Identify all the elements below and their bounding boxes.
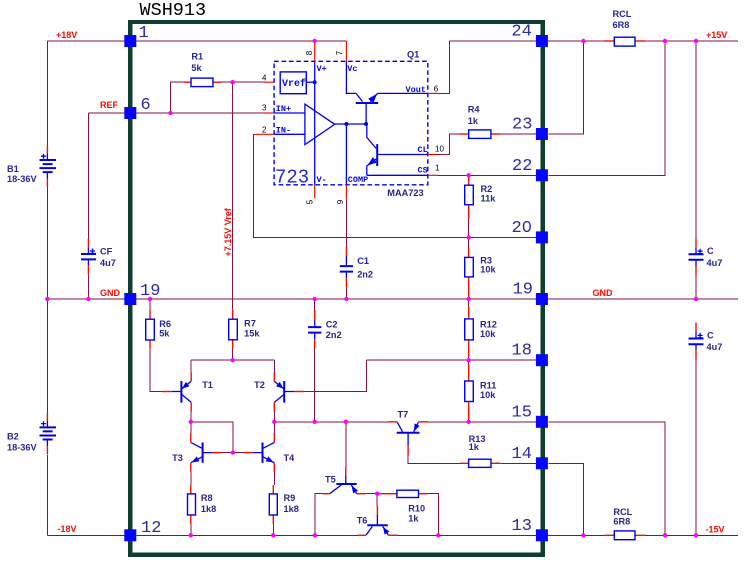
svg-text:COMP: COMP — [348, 175, 368, 185]
svg-text:REF: REF — [100, 100, 119, 110]
svg-text:5k: 5k — [191, 63, 202, 73]
svg-text:4u7: 4u7 — [707, 258, 723, 268]
svg-text:18-36V: 18-36V — [7, 443, 37, 453]
svg-text:24: 24 — [511, 23, 531, 42]
svg-text:R11: R11 — [480, 381, 496, 391]
svg-text:R6: R6 — [159, 319, 171, 329]
svg-text:T1: T1 — [202, 380, 213, 390]
svg-text:10k: 10k — [480, 390, 496, 400]
svg-text:10k: 10k — [480, 329, 496, 339]
svg-text:1k: 1k — [469, 442, 480, 452]
svg-text:9: 9 — [336, 199, 345, 204]
svg-text:10: 10 — [435, 145, 444, 154]
svg-text:1k: 1k — [408, 513, 419, 523]
svg-text:R2: R2 — [481, 184, 493, 194]
svg-text:B1: B1 — [7, 164, 19, 174]
svg-text:15: 15 — [512, 403, 532, 422]
svg-text:V-: V- — [317, 175, 327, 185]
svg-text:1: 1 — [139, 24, 149, 43]
svg-text:Vc: Vc — [347, 64, 357, 74]
svg-text:5k: 5k — [159, 329, 170, 339]
svg-text:+15V: +15V — [706, 30, 727, 40]
svg-text:14: 14 — [512, 445, 532, 464]
svg-text:Vref: Vref — [282, 78, 306, 90]
svg-text:IN-: IN- — [276, 125, 291, 135]
svg-text:C2: C2 — [326, 320, 338, 330]
svg-text:R8: R8 — [201, 493, 213, 503]
svg-text:MAA723: MAA723 — [387, 188, 423, 198]
svg-text:CS: CS — [418, 166, 428, 176]
svg-text:23: 23 — [512, 116, 532, 135]
svg-text:Vout: Vout — [406, 85, 426, 95]
svg-text:12: 12 — [141, 519, 161, 538]
svg-text:V+: V+ — [317, 64, 327, 74]
svg-text:R12: R12 — [480, 320, 497, 330]
svg-text:1: 1 — [435, 164, 440, 173]
svg-text:1k8: 1k8 — [201, 504, 216, 514]
svg-text:-18V: -18V — [58, 524, 77, 534]
svg-text:T2: T2 — [254, 380, 265, 390]
svg-text:11k: 11k — [481, 194, 497, 204]
svg-text:T4: T4 — [284, 453, 296, 463]
svg-text:CL: CL — [418, 145, 428, 155]
svg-text:13: 13 — [512, 517, 532, 536]
svg-text:18-36V: 18-36V — [7, 174, 37, 184]
svg-text:T6: T6 — [357, 516, 368, 526]
svg-text:2n2: 2n2 — [326, 330, 342, 340]
svg-text:3: 3 — [262, 104, 267, 113]
svg-text:C1: C1 — [357, 256, 369, 266]
svg-text:2: 2 — [262, 125, 267, 134]
svg-text:R9: R9 — [284, 493, 296, 503]
svg-text:-15V: -15V — [706, 524, 725, 534]
svg-text:+7.15V Vref: +7.15V Vref — [223, 207, 233, 256]
svg-text:6R8: 6R8 — [613, 20, 630, 30]
svg-text:GND: GND — [100, 288, 121, 298]
svg-text:5: 5 — [305, 199, 314, 204]
svg-text:C: C — [707, 246, 714, 256]
svg-text:6R8: 6R8 — [613, 516, 630, 526]
svg-text:723: 723 — [275, 166, 309, 188]
svg-text:Q1: Q1 — [407, 50, 419, 60]
svg-text:18: 18 — [512, 342, 532, 361]
svg-text:19: 19 — [140, 282, 160, 301]
svg-text:4: 4 — [262, 74, 267, 83]
svg-text:4u7: 4u7 — [100, 258, 116, 268]
svg-text:WSH913: WSH913 — [140, 0, 207, 21]
svg-text:15k: 15k — [244, 328, 260, 338]
svg-text:T7: T7 — [398, 410, 409, 420]
svg-text:2n2: 2n2 — [357, 269, 373, 279]
svg-text:4u7: 4u7 — [707, 342, 723, 352]
svg-text:GND: GND — [593, 288, 614, 298]
svg-text:7: 7 — [335, 50, 344, 55]
svg-text:6: 6 — [434, 84, 439, 93]
svg-text:22: 22 — [512, 157, 532, 176]
svg-text:R7: R7 — [244, 318, 256, 328]
svg-text:T5: T5 — [325, 474, 336, 484]
svg-text:B2: B2 — [7, 432, 19, 442]
svg-text:C: C — [707, 330, 714, 340]
svg-text:IN+: IN+ — [276, 104, 291, 114]
svg-text:6: 6 — [141, 96, 151, 115]
svg-text:1k: 1k — [468, 116, 479, 126]
svg-text:R1: R1 — [191, 52, 203, 62]
svg-text:R10: R10 — [408, 503, 425, 513]
svg-text:1k8: 1k8 — [284, 504, 299, 514]
svg-text:RCL: RCL — [613, 9, 632, 19]
svg-text:19: 19 — [513, 281, 533, 300]
svg-text:+18V: +18V — [56, 30, 77, 40]
svg-text:T3: T3 — [172, 453, 183, 463]
svg-text:R4: R4 — [468, 104, 481, 114]
svg-text:CF: CF — [100, 246, 113, 256]
svg-text:10k: 10k — [480, 265, 496, 275]
svg-text:8: 8 — [305, 50, 314, 55]
